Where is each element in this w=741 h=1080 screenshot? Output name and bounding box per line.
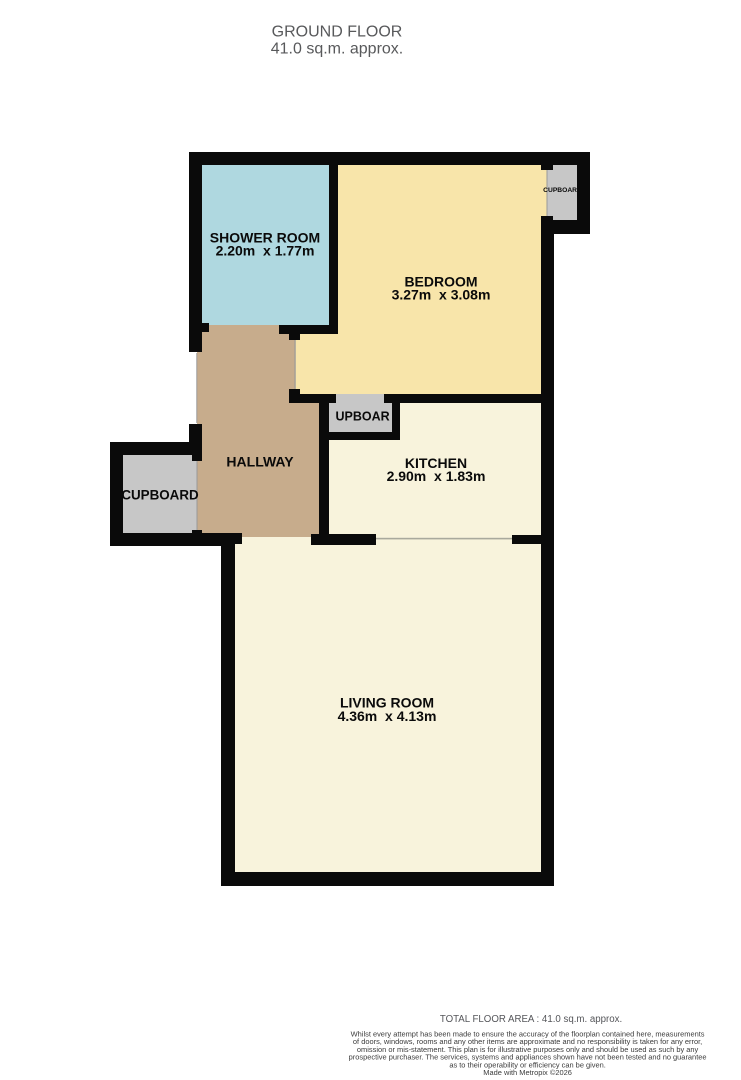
svg-text:2.20m x 1.77m: 2.20m x 1.77m [216,243,315,259]
svg-text:GROUND FLOOR: GROUND FLOOR [272,24,403,41]
svg-text:CUPBOARD: CUPBOARD [121,488,199,503]
svg-text:41.0 sq.m. approx.: 41.0 sq.m. approx. [271,41,404,58]
svg-text:3.27m x 3.08m: 3.27m x 3.08m [392,287,491,303]
svg-text:UPBOARD: UPBOARD [336,410,399,424]
svg-text:4.36m x 4.13m: 4.36m x 4.13m [338,708,437,724]
svg-text:CUPBOARD: CUPBOARD [543,187,582,194]
svg-text:TOTAL FLOOR AREA : 41.0 sq.m.: TOTAL FLOOR AREA : 41.0 sq.m. approx. [440,1014,622,1025]
svg-text:HALLWAY: HALLWAY [226,454,294,470]
svg-text:2.90m x 1.83m: 2.90m x 1.83m [387,468,486,484]
svg-text:Made with Metropix ©2026: Made with Metropix ©2026 [483,1068,572,1077]
